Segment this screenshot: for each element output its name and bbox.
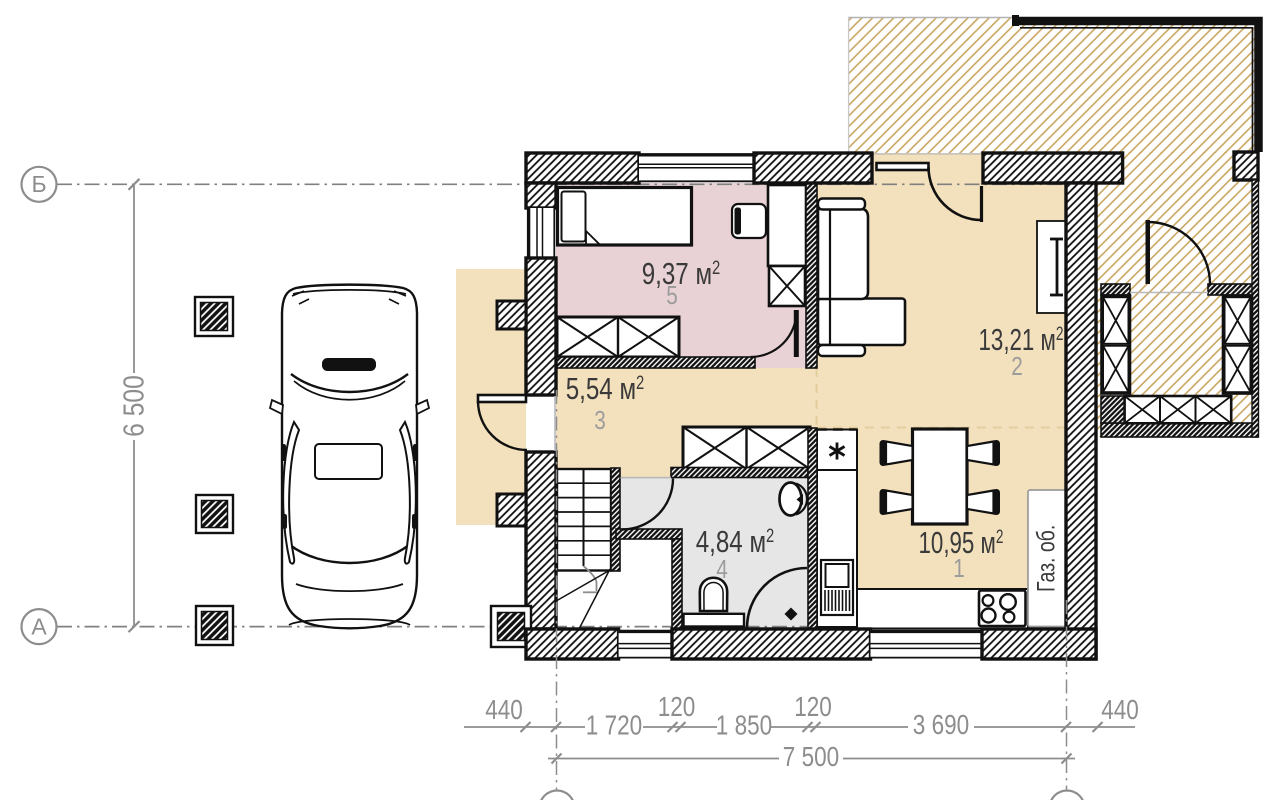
svg-text:Газ. об.: Газ. об. (1032, 525, 1060, 592)
svg-text:6 500: 6 500 (118, 375, 150, 437)
svg-text:1: 1 (953, 554, 965, 583)
svg-text:3: 3 (594, 406, 606, 435)
svg-text:120: 120 (794, 692, 832, 723)
svg-text:2: 2 (1011, 352, 1023, 381)
svg-text:1 720: 1 720 (586, 710, 642, 741)
svg-text:4,84 м2: 4,84 м2 (696, 524, 775, 559)
svg-text:5: 5 (666, 281, 678, 310)
svg-text:440: 440 (485, 695, 523, 726)
svg-text:7 500: 7 500 (783, 742, 839, 773)
svg-text:1 850: 1 850 (716, 710, 772, 741)
svg-text:5,54 м2: 5,54 м2 (566, 371, 645, 406)
svg-text:4: 4 (716, 555, 728, 584)
svg-text:3 690: 3 690 (913, 710, 969, 741)
svg-text:9,37 м2: 9,37 м2 (642, 256, 721, 291)
svg-text:440: 440 (1101, 695, 1139, 726)
svg-text:А: А (31, 614, 47, 640)
svg-text:Б: Б (31, 171, 46, 197)
svg-text:120: 120 (658, 692, 696, 723)
